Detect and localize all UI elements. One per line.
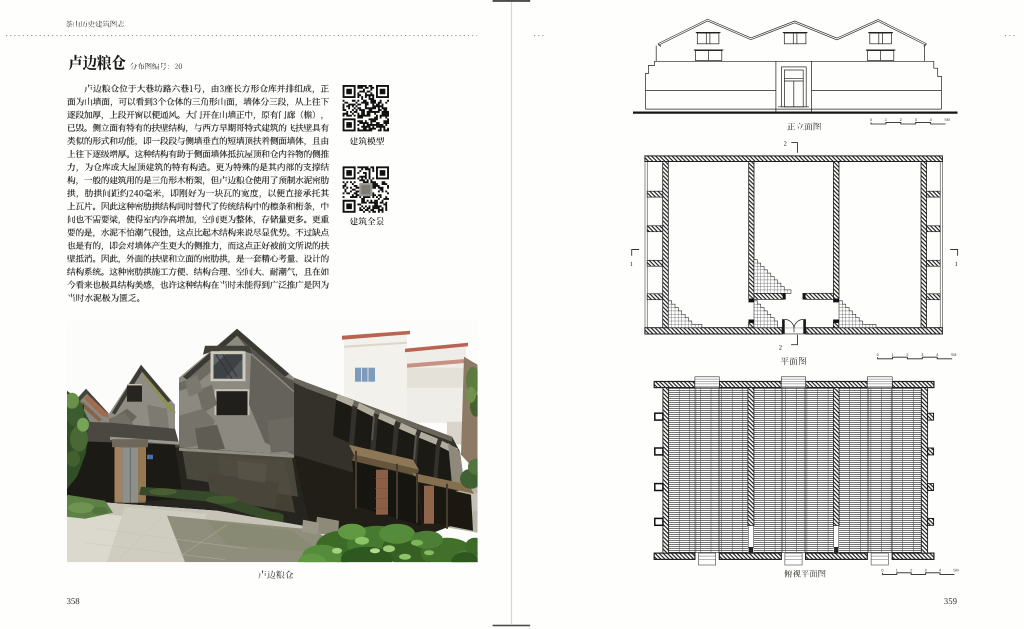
svg-text:2: 2 <box>779 345 782 352</box>
svg-text:0: 0 <box>881 568 883 572</box>
svg-text:3: 3 <box>921 353 923 357</box>
svg-text:1: 1 <box>630 261 633 268</box>
svg-text:2: 2 <box>910 568 912 572</box>
svg-text:4: 4 <box>936 353 938 357</box>
svg-text:2: 2 <box>900 118 902 122</box>
svg-text:5M: 5M <box>951 353 956 357</box>
svg-text:1: 1 <box>896 568 898 572</box>
svg-text:2: 2 <box>906 353 908 357</box>
svg-text:3: 3 <box>925 568 927 572</box>
svg-text:0: 0 <box>877 353 879 357</box>
svg-text:5M: 5M <box>953 568 958 572</box>
svg-text:4: 4 <box>930 118 932 122</box>
svg-text:4: 4 <box>939 568 941 572</box>
svg-text:1: 1 <box>885 118 887 122</box>
svg-text:5M: 5M <box>945 118 950 122</box>
svg-text:358: 358 <box>67 596 81 606</box>
svg-text:3: 3 <box>915 118 917 122</box>
svg-text:2: 2 <box>784 141 787 148</box>
svg-text:0: 0 <box>870 118 872 122</box>
svg-text:359: 359 <box>944 596 958 606</box>
svg-text:1: 1 <box>892 353 894 357</box>
svg-text:1: 1 <box>955 261 958 268</box>
